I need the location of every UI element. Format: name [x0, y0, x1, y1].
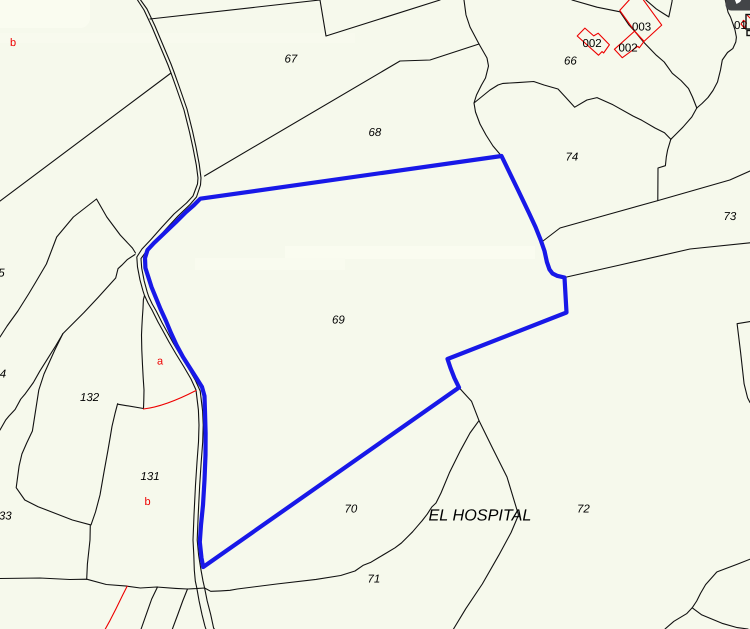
svg-text:69: 69: [332, 314, 345, 326]
svg-text:74: 74: [566, 152, 579, 164]
svg-text:134: 134: [0, 369, 6, 381]
svg-text:68: 68: [369, 127, 382, 139]
svg-text:133: 133: [0, 511, 12, 523]
svg-text:70: 70: [345, 504, 358, 516]
svg-text:73: 73: [724, 211, 737, 223]
svg-text:01: 01: [734, 20, 747, 32]
svg-text:135: 135: [0, 267, 5, 279]
svg-text:b: b: [145, 496, 151, 508]
svg-text:72: 72: [577, 503, 590, 515]
svg-text:67: 67: [285, 54, 298, 66]
svg-text:002: 002: [583, 38, 602, 50]
svg-text:71: 71: [368, 573, 381, 585]
svg-text:003: 003: [632, 22, 651, 34]
svg-text:66: 66: [564, 56, 577, 68]
svg-text:002: 002: [619, 42, 638, 54]
svg-text:132: 132: [80, 392, 100, 404]
svg-text:b: b: [10, 37, 16, 49]
svg-text:a: a: [157, 356, 164, 368]
svg-text:EL HOSPITAL: EL HOSPITAL: [429, 507, 532, 525]
svg-text:131: 131: [141, 471, 160, 483]
